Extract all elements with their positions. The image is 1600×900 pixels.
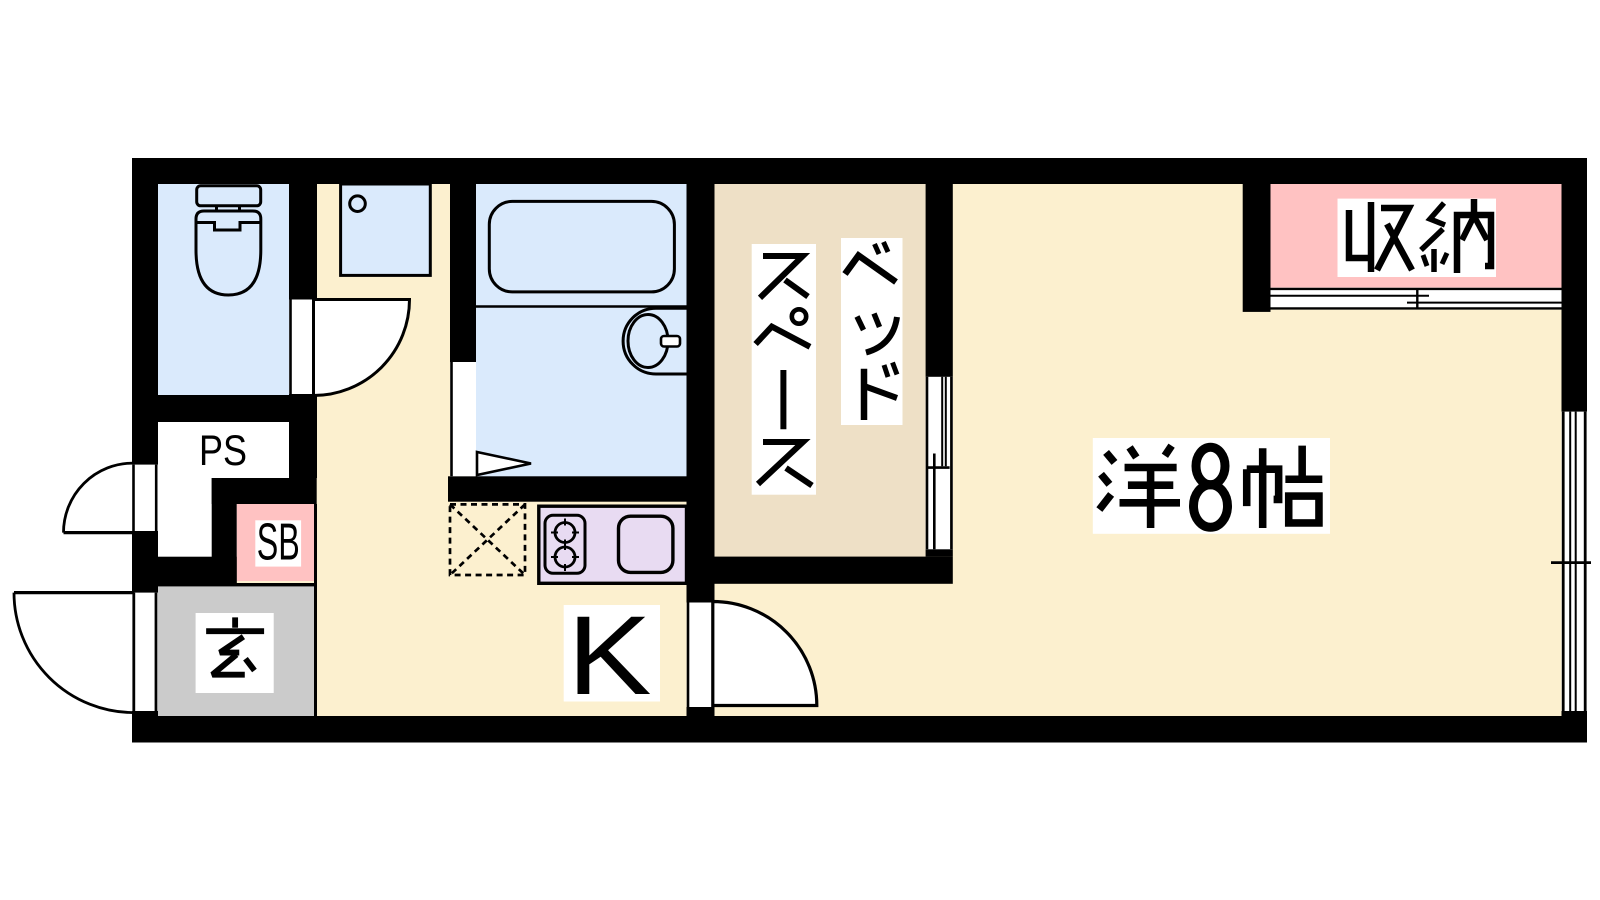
svg-text:PS: PS [199,427,247,475]
svg-text:SB: SB [257,514,300,572]
svg-text:K: K [567,594,651,719]
